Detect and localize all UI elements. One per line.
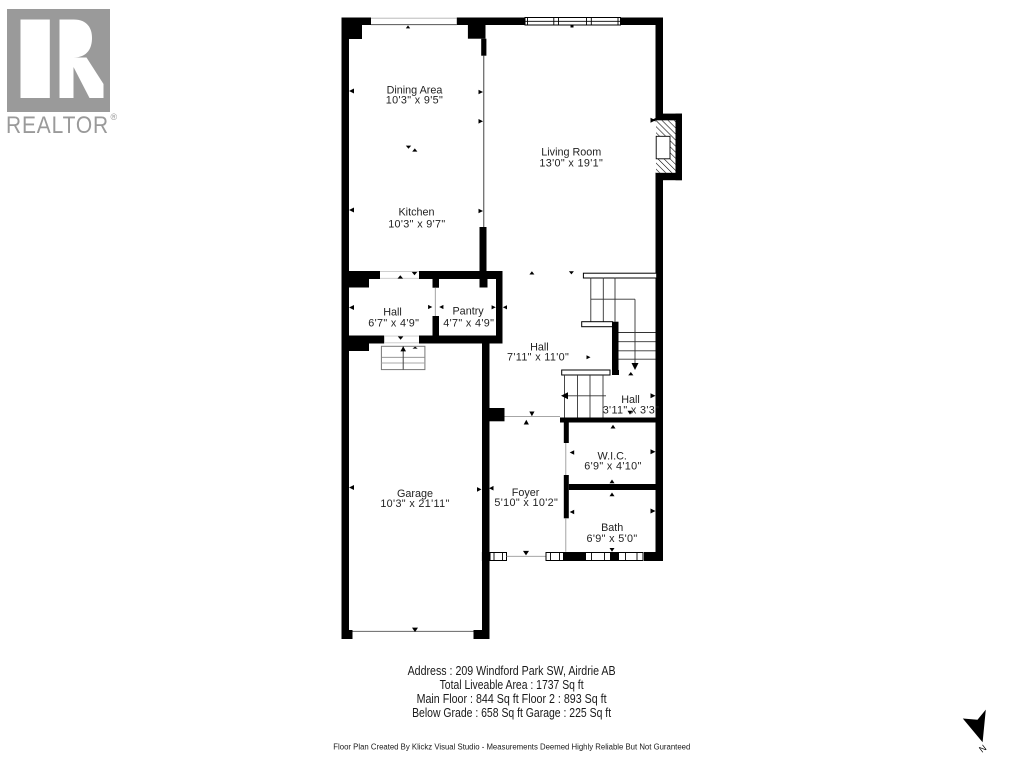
svg-text:10'3" x 21'11": 10'3" x 21'11" [380,498,449,510]
svg-text:Pantry: Pantry [452,306,484,318]
svg-text:7'11" x 11'0": 7'11" x 11'0" [507,352,569,364]
svg-text:10'3" x 9'7": 10'3" x 9'7" [388,218,445,230]
svg-text:6'9" x 5'0": 6'9" x 5'0" [586,533,637,545]
svg-text:Address : 209 Windford Park SW: Address : 209 Windford Park SW, Airdrie … [408,664,616,678]
svg-text:Total Liveable Area : 1737 Sq: Total Liveable Area : 1737 Sq ft [440,678,584,692]
svg-text:®: ® [111,112,118,122]
svg-text:5'10" x 10'2": 5'10" x 10'2" [494,497,558,509]
svg-text:4'7" x 4'9": 4'7" x 4'9" [443,318,494,330]
svg-text:13'0" x 19'1": 13'0" x 19'1" [539,158,603,170]
svg-text:Main Floor : 844 Sq ft Floor 2: Main Floor : 844 Sq ft Floor 2 : 893 Sq … [417,692,607,706]
svg-text:Kitchen: Kitchen [398,207,434,219]
svg-text:6'7" x 4'9": 6'7" x 4'9" [368,318,419,330]
svg-text:6'9" x 4'10": 6'9" x 4'10" [584,461,641,473]
svg-text:REALTOR: REALTOR [6,112,109,139]
svg-text:10'3" x 9'5": 10'3" x 9'5" [386,94,443,106]
svg-text:Below Grade : 658 Sq ft Garage: Below Grade : 658 Sq ft Garage : 225 Sq … [412,706,611,720]
svg-text:3'11" x 3'3": 3'11" x 3'3" [603,405,660,417]
svg-text:Floor Plan Created By Klickz V: Floor Plan Created By Klickz Visual Stud… [333,743,690,752]
